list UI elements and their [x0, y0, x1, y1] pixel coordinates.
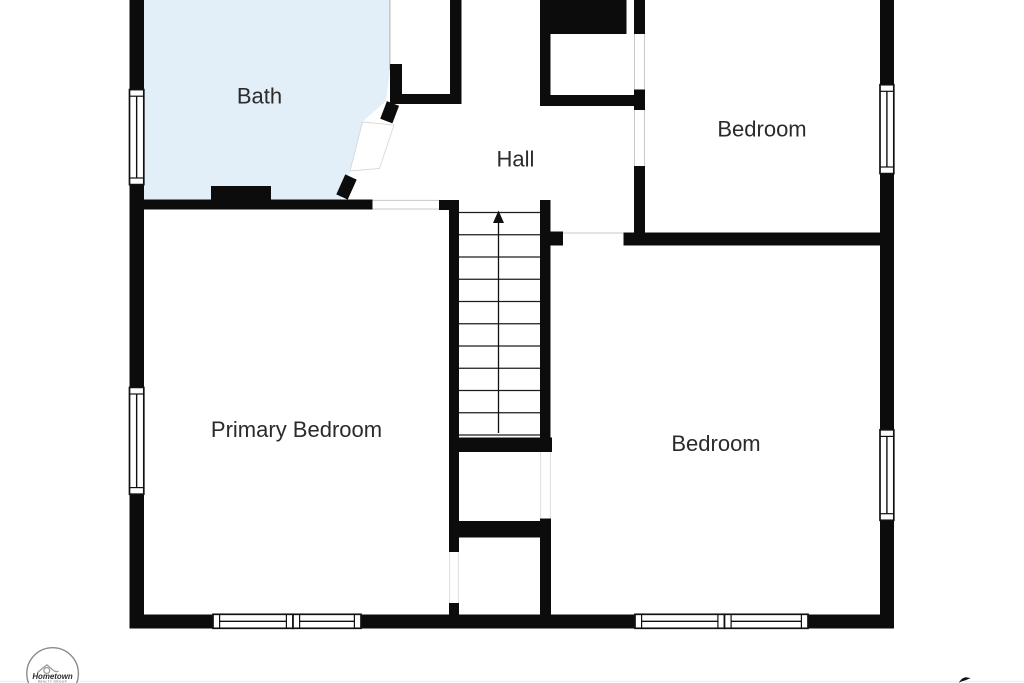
- svg-text:Bedroom: Bedroom: [671, 431, 760, 456]
- svg-text:Primary Bedroom: Primary Bedroom: [211, 417, 382, 442]
- svg-text:Bath: Bath: [237, 84, 282, 109]
- svg-text:Bedroom: Bedroom: [717, 117, 806, 142]
- svg-text:REALTY GROUP: REALTY GROUP: [38, 680, 67, 683]
- svg-text:Hall: Hall: [497, 147, 535, 172]
